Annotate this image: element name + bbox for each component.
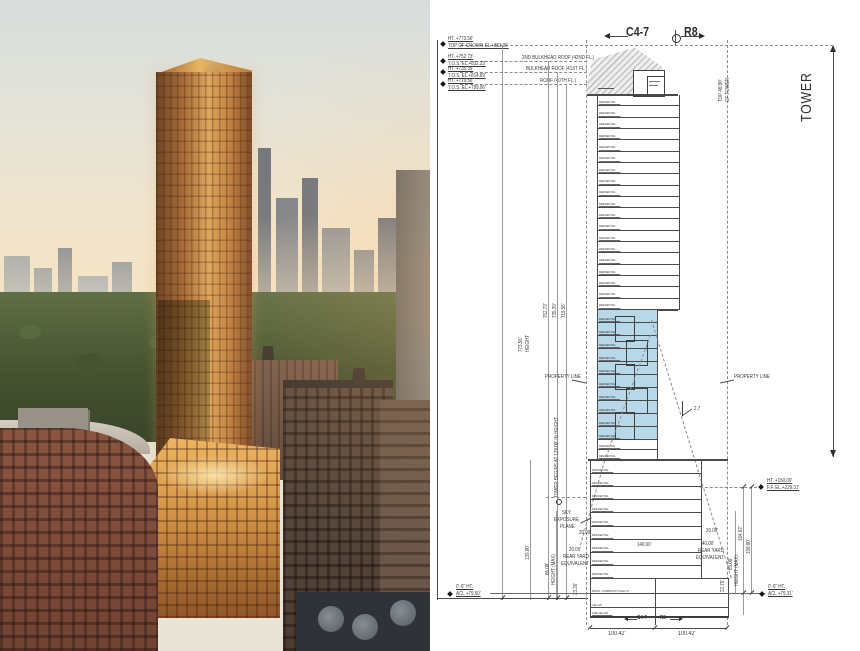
- right-dim-20: 20.00': [706, 528, 718, 534]
- lot-dim-left: 100.42': [608, 631, 626, 638]
- boundary-label-c47: C4-7: [637, 615, 647, 621]
- zoning-boundary-tick: [675, 30, 676, 46]
- sky-exposure-label-1: SKY: [562, 510, 571, 516]
- floor-label: RESIDENTIAL: [592, 521, 613, 526]
- callout-4-elev: T.O.S. EL.+799.06': [448, 85, 486, 91]
- callout-crown-height: HT. +773.56': [448, 36, 473, 42]
- floor-label: RESIDENTIAL: [599, 180, 620, 185]
- arrow-down-icon: [830, 450, 836, 457]
- floor-row: RESIDENTIAL: [598, 197, 679, 208]
- slope-ratio-label: 2.7: [694, 406, 700, 412]
- floor-label: RESIDENTIAL: [599, 237, 620, 242]
- floor-row: RESIDENTIAL: [598, 163, 679, 174]
- floor-row: RESIDENTIAL: [598, 253, 679, 264]
- elevation-marker-icon: [447, 591, 453, 597]
- floor-label: RESIDENTIAL: [592, 482, 613, 487]
- right-callout-el: F.F. EL.+229.31': [767, 485, 799, 491]
- tower-begins-level-line: [546, 497, 586, 498]
- slope-triangle-icon: [682, 394, 692, 416]
- top-of-tower-dim-1: TOP 40.00': [718, 80, 724, 102]
- note-marker-icon: [556, 499, 562, 505]
- floor-label: RESIDENTIAL: [592, 547, 613, 552]
- floor-label: RESIDENTIAL: [592, 495, 613, 500]
- floor-label: RESIDENTIAL: [599, 304, 620, 309]
- tower-upper-floors: RESIDENTIALRESIDENTIALRESIDENTIALRESIDEN…: [597, 95, 680, 310]
- boundary-label-r8: R8: [660, 615, 666, 621]
- left-dim-20b: 20.00': [569, 547, 581, 553]
- left-equivalent: EQUIVALENT: [561, 561, 589, 567]
- elevation-marker-icon: [440, 41, 446, 47]
- dimension-line: [437, 40, 438, 600]
- right-equivalent: EQUIVALENT: [696, 555, 724, 561]
- floor-label: RESIDENTIAL: [599, 357, 620, 362]
- floor-label: RESIDENTIAL: [592, 534, 613, 539]
- label-2nd-bulkhead-roof: 2ND BULKHEAD ROOF (42ND FL.): [522, 55, 594, 61]
- floor-row: RESIDENTIAL: [591, 500, 701, 513]
- setback-steps: [626, 340, 648, 366]
- arrow-right-icon: [679, 617, 683, 621]
- floor-label: RESIDENTIAL: [599, 135, 620, 140]
- tower-bracket-label: TOWER: [798, 72, 815, 122]
- water-tower: [262, 346, 274, 360]
- leader-line: [572, 380, 586, 384]
- podium-width-dim: 140.00': [636, 542, 652, 548]
- floor-label: RESIDENTIAL: [599, 146, 620, 151]
- floor-label: RESIDENTIAL: [599, 157, 620, 162]
- podium-floors: RESIDENTIALRESIDENTIALRESIDENTIALRESIDEN…: [590, 460, 702, 580]
- floor-row: RESIDENTIAL: [598, 265, 679, 276]
- setback-step-line: [656, 309, 678, 311]
- floor-row: RESIDENTIAL: [598, 118, 679, 129]
- callout-4-height: HT. +719.56': [448, 78, 473, 84]
- lot-dimension-line: [590, 628, 727, 629]
- grade-right-acl: ACL +79.31': [768, 591, 793, 597]
- grade-left-acl: ACL +79.50': [456, 591, 481, 597]
- floor-row: RESIDENTIAL: [591, 513, 701, 526]
- floor-row: RESIDENTIAL: [598, 174, 679, 185]
- dimension-line: [743, 487, 744, 615]
- floor-label: RESIDENTIAL: [599, 396, 620, 401]
- dim-height-3: 735.39': [552, 303, 558, 318]
- floor-row: RESIDENTIAL: [598, 106, 679, 117]
- zoning-diagram: C4-7 R8 HT. +773.56' TOP OF CROWN EL.+85…: [430, 0, 860, 651]
- zoning-boundary-marker-icon: [672, 34, 681, 43]
- floor-label: RESIDENTIAL: [599, 169, 620, 174]
- dimension-line: [530, 460, 531, 600]
- arrow-left-icon: [604, 33, 610, 39]
- floor-row: RESIDENTIAL: [598, 152, 679, 163]
- dim-overall-height-label: HEIGHT: [525, 335, 531, 352]
- district-label-c47: C4-7: [626, 24, 649, 39]
- rooftop-mechanical: [18, 408, 88, 430]
- grade-right-ht: 0'-0" HT.: [768, 584, 785, 590]
- floor-row: RESIDENTIAL: [591, 553, 701, 566]
- property-line-right: [727, 40, 728, 625]
- callout-3-height: HT. +735.39': [448, 66, 473, 72]
- floor-row: RESIDENTIAL: [598, 140, 679, 151]
- podium-glow: [160, 455, 270, 495]
- dim-overall-height: 773.56': [518, 337, 524, 352]
- floor-label: RESIDENTIAL: [592, 560, 613, 565]
- floor-row: RESIDENTIAL: [598, 219, 679, 230]
- district-arrow-line-right: [681, 36, 701, 37]
- property-line-right-label: PROPERTY LINE: [734, 374, 763, 380]
- floor-label: RESIDENTIAL: [599, 101, 620, 106]
- page: C4-7 R8 HT. +773.56' TOP OF CROWN EL.+85…: [0, 0, 860, 651]
- floor-label: RESIDENTIAL: [599, 282, 620, 287]
- dimension-line: [548, 61, 549, 600]
- floor-label: RESIDENTIAL: [599, 112, 620, 117]
- floor-label: RESIDENTIAL: [599, 248, 620, 253]
- floor-row: RESIDENTIAL: [591, 461, 701, 474]
- tower-begins-note: TOWER BEGINS AT 139.00' IN HEIGHT: [554, 417, 560, 498]
- dim-2275: 22.75': [720, 580, 726, 592]
- level-line-top-of-crown: [460, 45, 833, 46]
- floor-label: RESIDENTIAL: [599, 225, 620, 230]
- dim-tick: [725, 625, 730, 630]
- floor-row: RESIDENTIAL: [598, 440, 657, 450]
- floor-row: RESIDENTIAL: [598, 287, 679, 298]
- floor-label: RESIDENTIAL: [592, 469, 613, 474]
- callout-2-height: HT. +752.73': [448, 54, 473, 60]
- elevation-marker-icon: [440, 58, 446, 64]
- boundary-arrow-line: [627, 619, 637, 620]
- grade-left-ht: 0'-0" HT.: [456, 584, 473, 590]
- floor-label: RESIDENTIAL: [599, 191, 620, 196]
- floor-label: RESIDENTIAL: [599, 214, 620, 219]
- rooftop-fan: [352, 614, 378, 640]
- setback-steps: [615, 316, 635, 342]
- district-arrow-line-left: [608, 36, 628, 37]
- district-boundary-line-bottom: [655, 578, 656, 625]
- floor-row: RESIDENTIAL: [598, 186, 679, 197]
- floor-row: RESIDENTIAL: [598, 208, 679, 219]
- podium-top-slab: [588, 459, 728, 461]
- floor-label: RESIDENTIAL: [592, 508, 613, 513]
- crown-label-smudge: [598, 88, 614, 89]
- floor-row: RESIDENTIAL: [598, 129, 679, 140]
- arrow-right-icon: [699, 33, 705, 39]
- elevation-marker-icon: [440, 81, 446, 87]
- callout-crown-elev: TOP OF CROWN EL.+853.06': [448, 43, 509, 49]
- right-callout-ht: HT. +150.00': [767, 478, 792, 484]
- dim-150: 150.00': [746, 539, 752, 554]
- floor-label: RESIDENTIAL: [599, 293, 620, 298]
- subcellar-label: SUB-CELLAR: [592, 612, 612, 617]
- tower-extent-line: [833, 47, 834, 457]
- floor-row: RESIDENTIAL: [598, 242, 679, 253]
- floor-row: RESIDENTIAL: [598, 95, 679, 106]
- grade-line-left: [490, 593, 590, 594]
- dim-85-right-label: HEIGHT (MAX): [734, 555, 740, 586]
- setback-steps: [615, 412, 635, 440]
- dim-139: 139.00': [525, 545, 531, 560]
- rendering-photo: [0, 0, 430, 651]
- arrow-up-icon: [830, 45, 836, 52]
- floor-row: RESIDENTIAL: [591, 527, 701, 540]
- dim-85-left-label: HEIGHT (MAX): [551, 554, 557, 585]
- right-rear-yard: REAR YARD: [698, 548, 724, 554]
- floor-row: RESIDENTIAL: [591, 487, 701, 500]
- floor-label: RESIDENTIAL: [599, 123, 620, 128]
- foreground-red-building: [0, 428, 158, 651]
- right-dim-40: 40.00': [702, 541, 714, 547]
- dim-height-4: 719.56': [561, 303, 567, 318]
- tower-crown-hatched: [580, 45, 680, 95]
- floor-label: RESIDENTIAL: [599, 203, 620, 208]
- arrow-left-icon: [624, 617, 628, 621]
- dimension-line: [502, 45, 503, 600]
- dim-16492: 164.92': [738, 526, 744, 541]
- floor-row: RESIDENTIAL: [598, 276, 679, 287]
- floor-label: RESIDENTIAL: [599, 271, 620, 276]
- rooftop-fan: [318, 606, 344, 632]
- property-line-left: [586, 40, 587, 625]
- rooftop-fan: [390, 600, 416, 626]
- level-line-150: [700, 487, 762, 488]
- top-of-tower-dim-2: OF TOWER: [725, 78, 731, 102]
- floor-label: RESIDENTIAL: [599, 259, 620, 264]
- label-roof: ROOF (40TH FL.): [540, 78, 576, 84]
- sky-exposure-label-2: EXPOSURE: [554, 517, 579, 523]
- elevation-marker-icon: [440, 69, 446, 75]
- floor-label: RESIDENTIAL: [599, 344, 620, 349]
- lot-dim-right: 100.42': [678, 631, 696, 638]
- dim-height-2: 752.73': [543, 303, 549, 318]
- floor-row: RESIDENTIAL: [598, 231, 679, 242]
- left-rear-yard: REAR YARD: [563, 554, 589, 560]
- property-line-left-label: PROPERTY LINE: [545, 374, 572, 380]
- sky-exposure-label-3: PLANE: [560, 524, 575, 530]
- bulkhead-text-smudge: [649, 85, 658, 86]
- water-tower: [352, 368, 366, 384]
- floor-row: RESIDENTIAL: [591, 474, 701, 487]
- bulkhead-text-smudge: [649, 81, 660, 82]
- elevation-marker-icon: [758, 484, 764, 490]
